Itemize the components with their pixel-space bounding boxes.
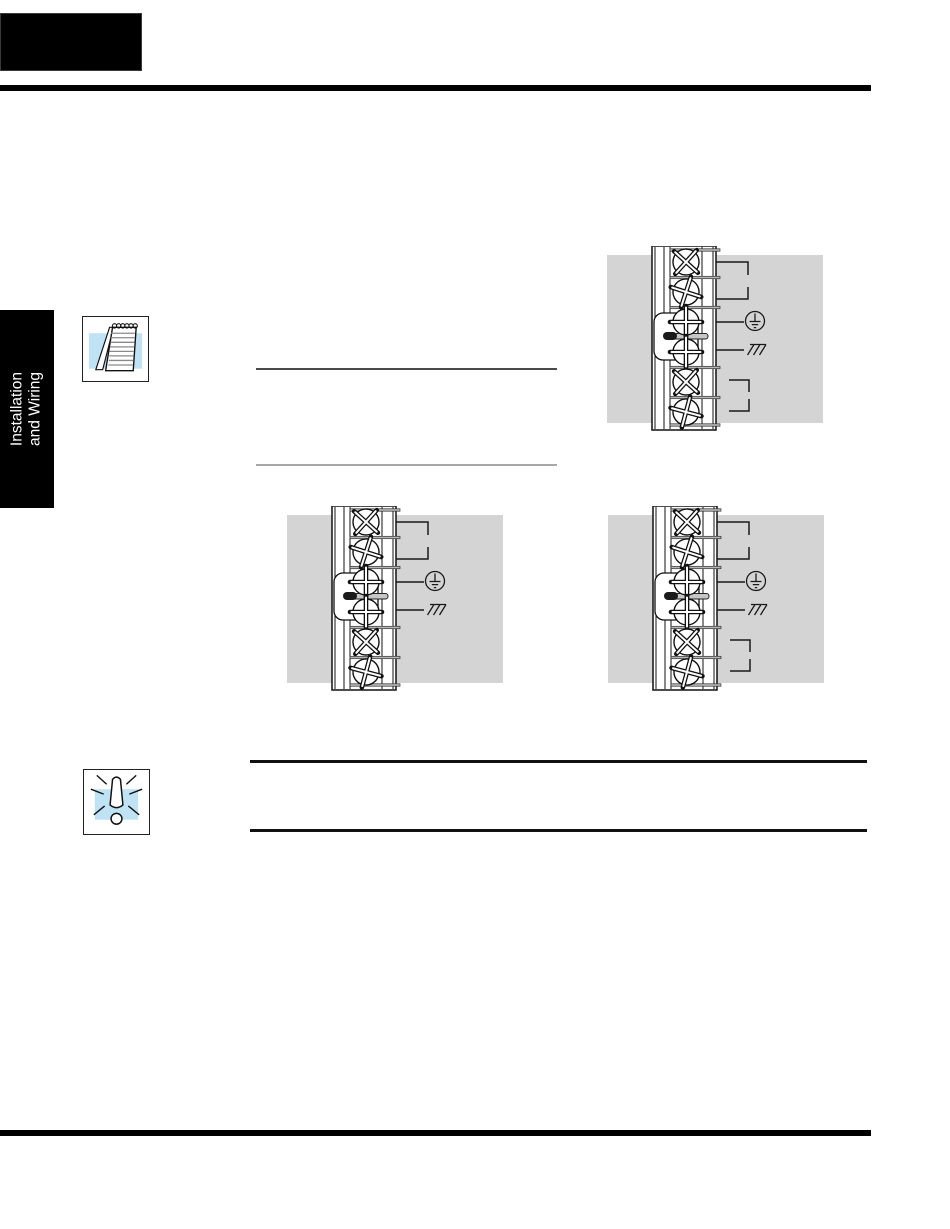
- warning-band-bottom-rule: [250, 829, 867, 832]
- terminal-separator: [670, 366, 720, 368]
- terminal-separator: [671, 656, 721, 658]
- terminal-separator: [671, 566, 721, 568]
- terminal-strip: [653, 506, 721, 692]
- terminal-separator: [350, 566, 400, 568]
- notepad-icon: [83, 317, 148, 381]
- terminal-block-diagram-middle-left: [287, 506, 507, 706]
- warning-icon: [83, 769, 150, 835]
- exclamation-dot: [111, 813, 122, 824]
- terminal-strip: [332, 506, 400, 692]
- terminal-separator: [671, 684, 721, 686]
- terminal-separator: [670, 306, 720, 308]
- terminal-strip: [652, 246, 720, 432]
- notepad-spiral-coils: [112, 324, 137, 328]
- jumper-bar-cap: [343, 592, 357, 600]
- terminal-separator: [350, 626, 400, 628]
- exclamation-bar: [110, 777, 123, 808]
- terminal-separator: [671, 626, 721, 628]
- terminal-separator: [671, 536, 721, 538]
- terminal-separator: [350, 684, 400, 686]
- exclamation-burst-icon: [84, 770, 149, 834]
- jumper-bar-cap: [663, 332, 677, 340]
- jumper-bar-cap: [664, 592, 678, 600]
- footer-rule: [0, 1130, 871, 1136]
- header-rule: [0, 85, 871, 91]
- sidebar-tab-label: Installation and Wiring: [9, 310, 46, 508]
- terminal-separator: [350, 656, 400, 658]
- terminal-separator: [670, 424, 720, 426]
- terminal-separator: [350, 536, 400, 538]
- terminal-block-diagram-top-right: [607, 246, 827, 446]
- sidebar-tab-installation-and-wiring: Installation and Wiring: [0, 310, 54, 508]
- note-band-top-rule: [256, 368, 557, 370]
- manual-page: Installation and Wiring: [0, 0, 950, 1229]
- terminal-block-diagram-middle-right: [608, 506, 828, 706]
- terminal-separator: [670, 276, 720, 278]
- sidebar-tab-label-line2: and Wiring: [27, 310, 45, 508]
- note-icon: [82, 316, 149, 382]
- note-band-bottom-rule: [256, 464, 557, 466]
- sidebar-tab-label-line1: Installation: [9, 310, 27, 508]
- terminal-separator: [670, 396, 720, 398]
- warning-band-top-rule: [250, 760, 867, 763]
- chapter-header-block: [0, 13, 142, 71]
